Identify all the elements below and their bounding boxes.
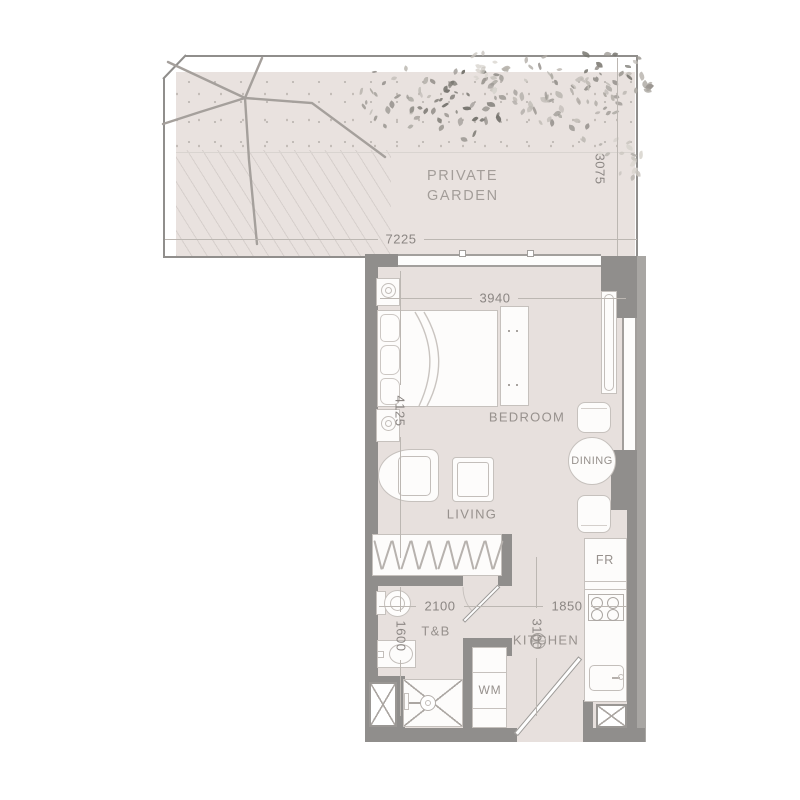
dim-line-3940-right — [518, 298, 626, 299]
dim-line-2100-left — [379, 606, 416, 607]
dim-line-3940-left — [380, 298, 472, 299]
dim-line-4125-top — [400, 271, 401, 385]
room-label-bath: T&B — [421, 624, 450, 639]
dim-label-kitchen-width: 1850 — [552, 599, 583, 614]
dim-line-1600-bottom — [400, 660, 401, 716]
dim-label-bath-height: 1600 — [394, 621, 409, 652]
dim-line-1600-top — [400, 587, 401, 612]
dim-line-3100-top — [536, 557, 537, 608]
dim-line-1850-right — [591, 606, 627, 607]
dim-line-2100-right — [464, 606, 543, 607]
dim-label-bedroom-height: 4125 — [393, 396, 408, 427]
dim-line-4125-bottom — [400, 437, 401, 558]
dim-label-bath-width: 2100 — [425, 599, 456, 614]
dim-line-3100-bottom — [536, 658, 537, 716]
room-label-bedroom: BEDROOM — [489, 410, 565, 425]
dim-label-bedroom-width: 3940 — [480, 291, 511, 306]
room-label-kitchen: KITCHEN — [513, 633, 579, 648]
floor-plan-canvas: PRIVATE GARDEN 7225 3075 DINING — [0, 0, 800, 800]
